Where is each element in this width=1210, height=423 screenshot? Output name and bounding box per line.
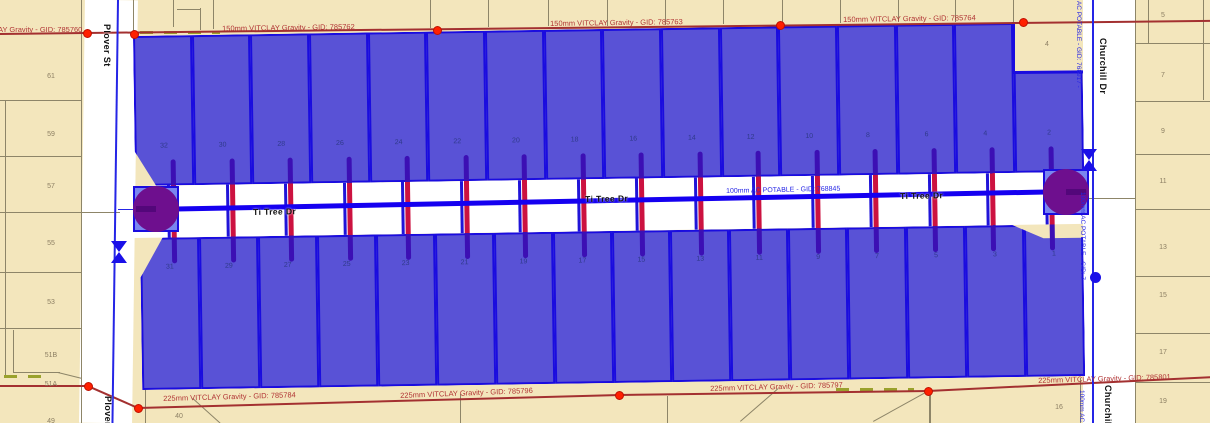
parcel-boundary-line bbox=[430, 0, 431, 28]
lot-parcel-32[interactable]: 32 bbox=[133, 35, 194, 186]
lot-number: 9 bbox=[791, 253, 846, 261]
parcel-boundary-line bbox=[0, 156, 82, 157]
parcel-boundary-line bbox=[1135, 382, 1210, 383]
lot-number-57: 57 bbox=[38, 183, 64, 190]
sewer-junction-dot[interactable] bbox=[776, 21, 785, 30]
lot-number-40: 40 bbox=[166, 413, 192, 420]
lot-number-11: 11 bbox=[1150, 178, 1176, 185]
service-water-line bbox=[810, 176, 814, 228]
lot-number-7: 7 bbox=[1150, 72, 1176, 79]
lot-number: 25 bbox=[319, 260, 374, 268]
lot-number-59: 59 bbox=[38, 131, 64, 138]
street-label-ti-tree-dr: Ti Tree Dr bbox=[253, 206, 296, 217]
service-line bbox=[522, 154, 529, 258]
lot-parcel-6[interactable]: 6 bbox=[896, 24, 957, 175]
map-canvas: 3230282624222018161412108642 31292725232… bbox=[0, 0, 1210, 423]
lot-number: 28 bbox=[254, 141, 309, 149]
parcel-boundary-line bbox=[488, 0, 489, 27]
service-water-line bbox=[459, 181, 463, 233]
lot-number: 24 bbox=[371, 139, 426, 147]
lot-number: 26 bbox=[313, 140, 368, 148]
parcel-boundary-line bbox=[1013, 0, 1014, 22]
lot-number-5: 5 bbox=[1150, 12, 1176, 19]
sewer-junction-dot[interactable] bbox=[130, 30, 139, 39]
selected-block-north-row: 3230282624222018161412108642 bbox=[133, 22, 1084, 186]
lot-parcel-31[interactable]: 31 bbox=[140, 237, 201, 390]
service-line bbox=[463, 155, 470, 259]
lot-number: 14 bbox=[665, 134, 720, 142]
lot-number: 29 bbox=[201, 262, 256, 270]
lot-parcel-18[interactable]: 18 bbox=[544, 29, 605, 180]
service-water-line bbox=[342, 183, 346, 235]
lot-number: 5 bbox=[909, 251, 964, 259]
lot-number: 4 bbox=[958, 130, 1013, 138]
service-line bbox=[873, 149, 880, 253]
lot-number: 13 bbox=[673, 255, 728, 263]
lot-number-51A: 51A bbox=[38, 381, 64, 388]
lot-parcel-22[interactable]: 22 bbox=[426, 31, 487, 182]
parcel-boundary-line bbox=[58, 372, 82, 379]
lot-parcel-16[interactable]: 16 bbox=[602, 28, 663, 179]
lot-parcel-14[interactable]: 14 bbox=[661, 27, 722, 178]
lot-number: 6 bbox=[899, 131, 954, 139]
parcel-boundary-line bbox=[840, 0, 841, 23]
sewer-junction-dot[interactable] bbox=[83, 29, 92, 38]
lot-number: 23 bbox=[378, 259, 433, 267]
parcel-boundary-line bbox=[667, 396, 668, 423]
lot-number-17: 17 bbox=[1150, 349, 1176, 356]
survey-dash-line bbox=[4, 375, 52, 378]
lot-parcel-8[interactable]: 8 bbox=[837, 25, 898, 176]
lot-number: 18 bbox=[547, 136, 602, 144]
service-water-line bbox=[693, 178, 697, 230]
lot-number: 8 bbox=[841, 132, 896, 140]
sewer-junction-dot[interactable] bbox=[134, 404, 143, 413]
street-label-plover-st-bottom: Plover St bbox=[103, 396, 113, 423]
manhole-outlet-stub bbox=[136, 206, 156, 212]
lot-number-15: 15 bbox=[1150, 292, 1176, 299]
parcel-boundary-line bbox=[929, 391, 931, 423]
lot-number: 27 bbox=[260, 261, 315, 269]
lot-number: 30 bbox=[195, 141, 250, 149]
parcel-boundary-line bbox=[873, 391, 928, 422]
lot-number: 17 bbox=[555, 257, 610, 265]
sewer-junction-dot[interactable] bbox=[1019, 18, 1028, 27]
lot-number-61: 61 bbox=[38, 73, 64, 80]
water-label-vertical: 100mm AC POTABLE bbox=[1078, 390, 1085, 423]
sewer-label: 225mm VITCLAY Gravity - GID: 785784 bbox=[163, 390, 296, 403]
sewer-junction-dot[interactable] bbox=[615, 391, 624, 400]
lot-parcel-12[interactable]: 12 bbox=[720, 26, 781, 177]
parcel-boundary-line bbox=[1135, 101, 1210, 102]
lot-border-notch bbox=[1012, 70, 1083, 74]
lot-parcel-28[interactable]: 28 bbox=[250, 33, 311, 184]
parcel-boundary-line bbox=[13, 372, 60, 373]
service-water-line bbox=[576, 179, 580, 231]
lot-number: 22 bbox=[430, 138, 485, 146]
street-label-plover-st: Plover St bbox=[102, 24, 112, 84]
service-line bbox=[229, 158, 236, 262]
lot-border-notch bbox=[1012, 22, 1015, 73]
parcel-boundary-line bbox=[723, 0, 724, 24]
selected-block-south-row: 312927252321191715131197531 bbox=[140, 224, 1085, 390]
parcel-boundary-line bbox=[1135, 276, 1210, 277]
lot-parcel-26[interactable]: 26 bbox=[309, 33, 370, 184]
street-label-churchill-dr: Churchill Dr bbox=[1098, 38, 1108, 178]
parcel-boundary-line bbox=[213, 0, 214, 29]
lot-number-19: 19 bbox=[1150, 398, 1176, 405]
sewer-junction-dot[interactable] bbox=[433, 26, 442, 35]
parcel-boundary-line bbox=[0, 328, 82, 329]
lot-number: 16 bbox=[606, 135, 661, 143]
lot-number: 32 bbox=[137, 142, 192, 150]
lot-number-13: 13 bbox=[1150, 244, 1176, 251]
lot-number-51B: 51B bbox=[38, 352, 64, 359]
sewer-label: 150mm VITCLAY Gravity - GID: 785762 bbox=[222, 22, 355, 33]
parcel-boundary-line bbox=[13, 330, 14, 372]
service-line bbox=[580, 153, 587, 257]
parcel-boundary-line bbox=[0, 272, 82, 273]
service-line bbox=[639, 152, 646, 256]
lot-number: 3 bbox=[967, 251, 1022, 259]
water-label-vertical: m AC POTABLE - GID: 768917 - bbox=[1075, 0, 1082, 98]
sewer-junction-dot[interactable] bbox=[924, 387, 933, 396]
water-fitting-dot[interactable] bbox=[1090, 272, 1101, 283]
service-line bbox=[405, 156, 412, 260]
lot-parcel-4[interactable]: 4 bbox=[954, 23, 1015, 174]
parcel-boundary-line bbox=[1135, 0, 1136, 423]
parcel-boundary-line bbox=[1135, 333, 1210, 334]
lot-parcel-30[interactable]: 30 bbox=[192, 34, 253, 185]
sewer-label: AY Gravity - GID: 785760 bbox=[0, 25, 82, 34]
lot-number: 1 bbox=[1026, 250, 1081, 258]
parcel-boundary-line bbox=[548, 0, 549, 26]
parcel-boundary-line bbox=[1135, 154, 1210, 155]
lot-number: 31 bbox=[142, 263, 197, 271]
lot-parcel-20[interactable]: 20 bbox=[485, 30, 546, 181]
parcel-boundary-line bbox=[1135, 43, 1210, 44]
parcel-boundary-line bbox=[1203, 0, 1204, 100]
sewer-junction-dot[interactable] bbox=[84, 382, 93, 391]
lot-number: 10 bbox=[782, 133, 837, 141]
water-label-vertical: 100mm AC POTABLE - GID: 76895 bbox=[1079, 192, 1086, 280]
parcel-boundary-line bbox=[177, 9, 200, 10]
street-label-ti-tree-dr: Ti Tree Dr bbox=[900, 190, 943, 201]
parcel-boundary-line bbox=[1135, 209, 1210, 210]
water-main-churchill[interactable] bbox=[1092, 0, 1094, 423]
service-line bbox=[346, 157, 353, 261]
street-label-ti-tree-dr: Ti Tree Dr bbox=[585, 193, 628, 204]
lot-number-4: 4 bbox=[1034, 41, 1060, 48]
lot-number: 11 bbox=[732, 254, 787, 262]
parcel-boundary-line bbox=[145, 388, 146, 423]
lot-number-16: 16 bbox=[1046, 404, 1072, 411]
service-line bbox=[697, 152, 704, 256]
parcel-boundary-line bbox=[5, 100, 6, 375]
lot-number-9: 9 bbox=[1150, 128, 1176, 135]
lot-parcel-29[interactable]: 29 bbox=[199, 236, 260, 389]
lot-number-53: 53 bbox=[38, 299, 64, 306]
road-churchill-dr bbox=[1083, 0, 1135, 423]
lot-number: 21 bbox=[437, 258, 492, 266]
service-water-line bbox=[225, 185, 229, 237]
lot-number-49: 49 bbox=[38, 418, 64, 423]
lot-number: 7 bbox=[850, 252, 905, 260]
parcel-boundary-line bbox=[200, 8, 201, 30]
street-label-churchill-dr-bottom: Churchill Dr bbox=[1103, 385, 1113, 423]
lot-parcel-24[interactable]: 24 bbox=[368, 32, 429, 183]
lot-number: 2 bbox=[1017, 129, 1082, 137]
lot-number-55: 55 bbox=[38, 240, 64, 247]
service-line bbox=[990, 147, 997, 251]
lot-parcel-10[interactable]: 10 bbox=[778, 26, 839, 177]
service-line bbox=[814, 150, 821, 254]
service-line bbox=[756, 151, 763, 255]
parcel-boundary-line bbox=[0, 212, 120, 213]
lot-number: 19 bbox=[496, 258, 551, 266]
lot-number: 20 bbox=[489, 137, 544, 145]
lot-number: 15 bbox=[614, 256, 669, 264]
lot-number: 12 bbox=[723, 134, 778, 142]
parcel-boundary-line bbox=[0, 100, 82, 101]
sewer-label: 150mm VITCLAY Gravity - GID: 785764 bbox=[843, 13, 976, 24]
sewer-label: 150mm VITCLAY Gravity - GID: 785763 bbox=[550, 17, 683, 28]
parcel-boundary-line bbox=[173, 0, 174, 27]
